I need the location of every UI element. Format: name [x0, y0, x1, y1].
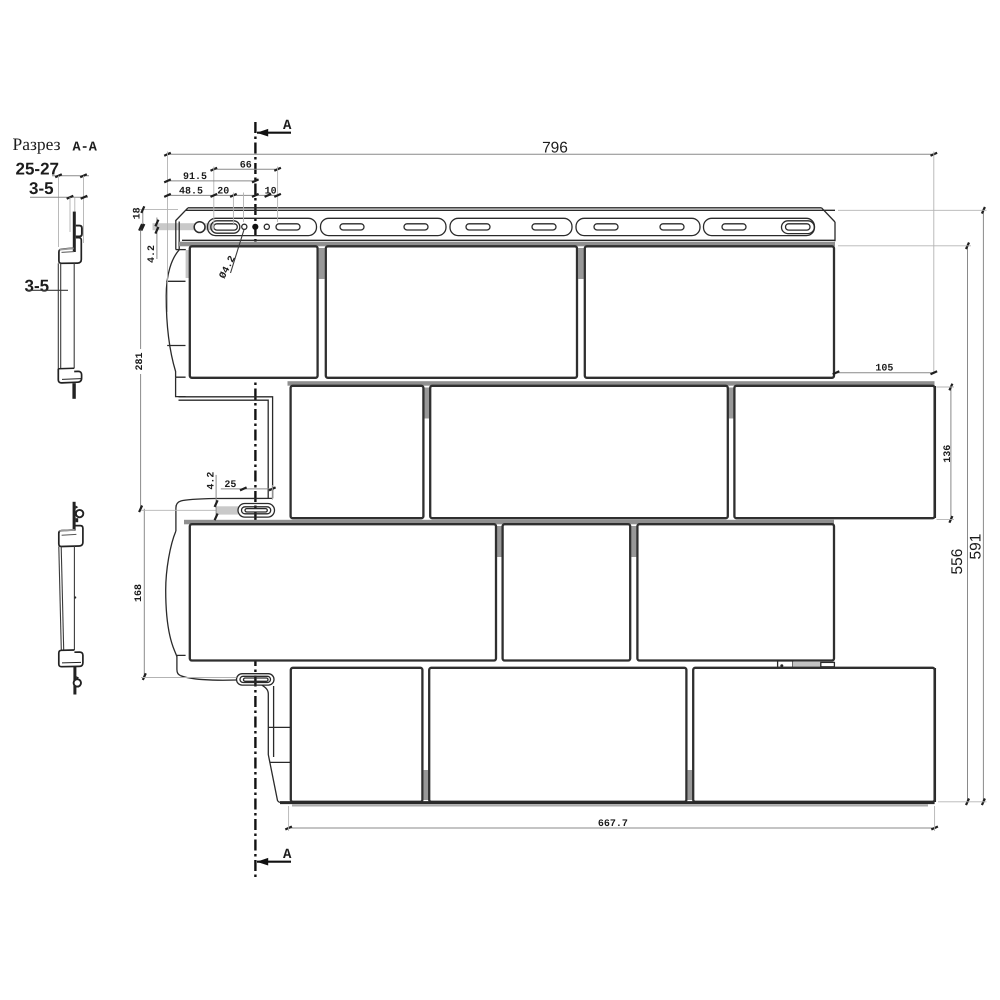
svg-text:A: A [283, 847, 292, 863]
svg-text:556: 556 [949, 549, 966, 575]
svg-text:20: 20 [217, 187, 229, 198]
svg-text:168: 168 [134, 584, 145, 602]
svg-text:A: A [283, 118, 292, 134]
svg-text:A-A: A-A [73, 141, 98, 156]
svg-text:25: 25 [224, 480, 236, 491]
svg-text:3-5: 3-5 [29, 179, 54, 198]
svg-text:4.2: 4.2 [206, 472, 217, 490]
svg-text:Разрез: Разрез [13, 134, 61, 154]
svg-text:10: 10 [265, 187, 277, 198]
svg-text:66: 66 [240, 161, 252, 172]
svg-text:796: 796 [542, 139, 568, 156]
svg-text:48.5: 48.5 [179, 187, 203, 198]
svg-text:281: 281 [135, 352, 146, 370]
svg-text:105: 105 [875, 364, 893, 375]
svg-text:4.2: 4.2 [147, 245, 158, 263]
svg-text:3-5: 3-5 [25, 277, 50, 296]
svg-text:591: 591 [968, 534, 985, 560]
svg-text:136: 136 [943, 445, 954, 463]
svg-text:667.7: 667.7 [598, 819, 628, 830]
svg-text:91.5: 91.5 [183, 172, 207, 183]
svg-text:18: 18 [132, 207, 143, 219]
